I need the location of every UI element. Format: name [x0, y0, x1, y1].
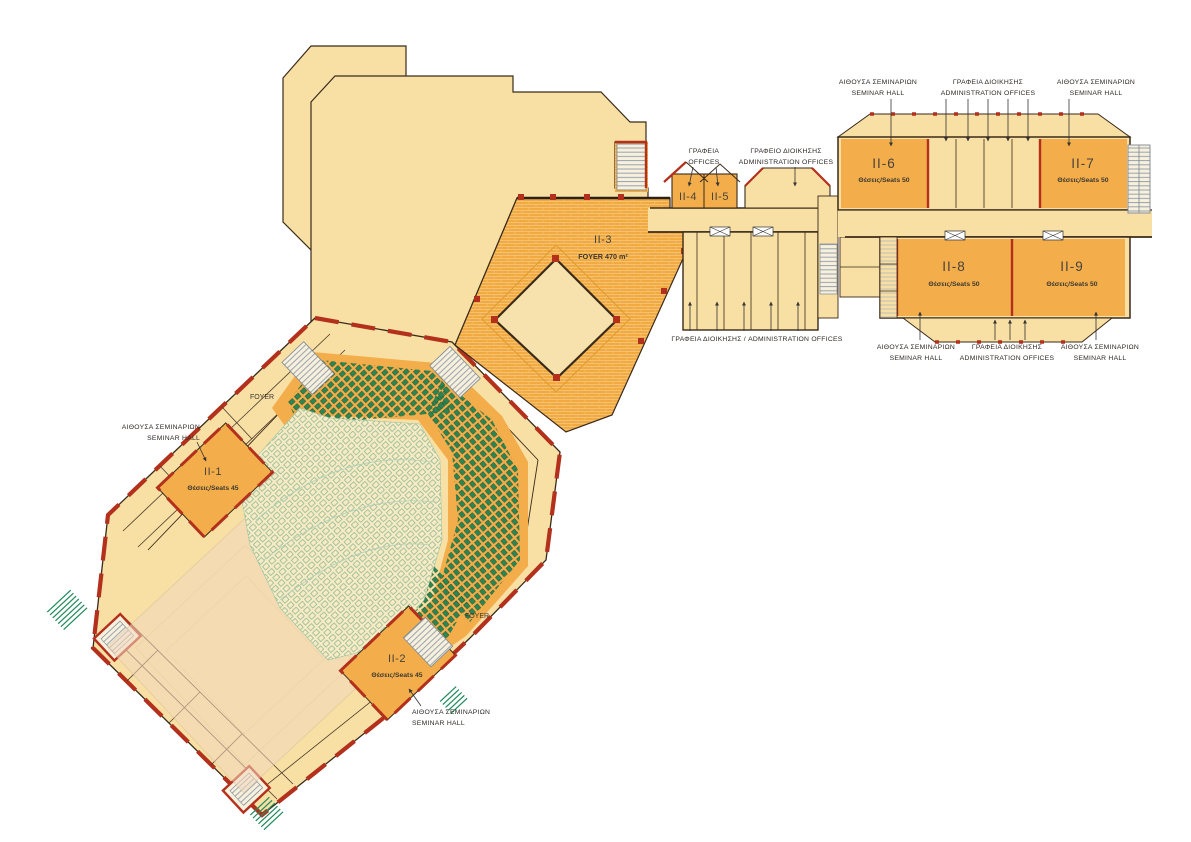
room-label-II-2: II-2: [388, 653, 406, 665]
room-seats-II-1: Θέσεις/Seats 45: [187, 485, 238, 492]
label-admin-office-en: ADMINISTRATION OFFICES: [739, 159, 834, 166]
room-label-II-9: II-9: [1060, 259, 1084, 274]
room-II-9: [1012, 239, 1125, 316]
service-rooms: [880, 237, 897, 318]
label-admin-offices-top-en: ADMINISTRATION OFFICES: [941, 90, 1036, 97]
label-foyer-se: FOYER: [465, 613, 489, 620]
room-label-II-6: II-6: [872, 156, 896, 171]
label-seminar-hall-bottom-right-en: SEMINAR HALL: [1074, 355, 1127, 362]
right-wing: [838, 114, 1152, 342]
label-offices-gr: ΓΡΑΦΕΙΑ: [689, 148, 719, 155]
label-seminar-hall-bottom-right-gr: ΑΙΘΟΥΣΑ ΣΕΜΙΝΑΡΙΩΝ: [1061, 344, 1139, 351]
right-wing-corridor: [838, 210, 1152, 237]
room-seats-II-8: Θέσεις/Seats 50: [928, 281, 979, 288]
label-admin-office-gr: ΓΡΑΦΕΙΟ ΔΙΟΙΚΗΣΗΣ: [750, 148, 821, 155]
room-II-7: [1040, 139, 1127, 208]
label-seminar-hall-bottom-left-en: SEMINAR HALL: [890, 355, 943, 362]
room-seats-II-7: Θέσεις/Seats 50: [1057, 177, 1108, 184]
label-admin-offices-bottom-en: ADMINISTRATION OFFICES: [960, 355, 1055, 362]
room-seats-II-6: Θέσεις/Seats 50: [858, 177, 909, 184]
room-admin-office: [745, 168, 830, 208]
room-label-II-5: II-5: [711, 191, 729, 203]
room-seats-II-9: Θέσεις/Seats 50: [1046, 281, 1097, 288]
label-seminar-hall-top-right-gr: ΑΙΘΟΥΣΑ ΣΕΜΙΝΑΡΙΩΝ: [1057, 79, 1135, 86]
label-seminar-hall-top-left-gr: ΑΙΘΟΥΣΑ ΣΕΜΙΝΑΡΙΩΝ: [839, 79, 917, 86]
foyer-stair: [617, 144, 646, 190]
floor-plan-canvas: ΑΙΘΟΥΣΑ ΣΕΜΙΝΑΡΙΩΝ SEMINAR HALL ΓΡΑΦΕΙΑ …: [0, 0, 1191, 842]
label-seminar-hall-top-left-en: SEMINAR HALL: [852, 90, 905, 97]
room-label-II-8: II-8: [942, 259, 966, 274]
room-area-II-3: FOYER 470 m²: [578, 252, 628, 261]
room-label-II-1: II-1: [204, 466, 222, 478]
floor-plan-page: ΑΙΘΟΥΣΑ ΣΕΜΙΝΑΡΙΩΝ SEMINAR HALL ΓΡΑΦΕΙΑ …: [0, 0, 1191, 842]
room-label-II-7: II-7: [1071, 156, 1095, 171]
room-II-8: [897, 239, 1012, 316]
room-label-II-4: II-4: [679, 191, 697, 203]
label-seminar-hall-bottom-left-gr: ΑΙΘΟΥΣΑ ΣΕΜΙΝΑΡΙΩΝ: [877, 344, 955, 351]
label-offices-en: OFFICES: [688, 159, 719, 166]
label-seminar-hall-II-1-en: SEMINAR HALL: [147, 435, 200, 442]
label-foyer-nw: FOYER: [250, 394, 274, 401]
room-label-II-3: II-3: [594, 234, 612, 246]
room-II-6: [841, 139, 928, 208]
label-admin-offices-inline: ΓΡΑΦΕΙΑ ΔΙΟΙΚΗΣΗΣ / ADMINISTRATION OFFIC…: [671, 336, 842, 343]
label-admin-offices-bottom-gr: ΓΡΑΦΕΙΑ ΔΙΟΙΚΗΣΗΣ: [972, 344, 1042, 351]
label-seminar-hall-top-right-en: SEMINAR HALL: [1070, 90, 1123, 97]
label-seminar-hall-II-1-gr: ΑΙΘΟΥΣΑ ΣΕΜΙΝΑΡΙΩΝ: [122, 424, 200, 431]
room-seats-II-2: Θέσεις/Seats 45: [371, 672, 422, 679]
label-seminar-hall-II-2-en: SEMINAR HALL: [412, 720, 465, 727]
label-seminar-hall-II-2-gr: ΑΙΘΟΥΣΑ ΣΕΜΙΝΑΡΙΩΝ: [412, 709, 490, 716]
connector-corridor: [648, 208, 838, 232]
label-admin-offices-top-gr: ΓΡΑΦΕΙΑ ΔΙΟΙΚΗΣΗΣ: [953, 79, 1023, 86]
